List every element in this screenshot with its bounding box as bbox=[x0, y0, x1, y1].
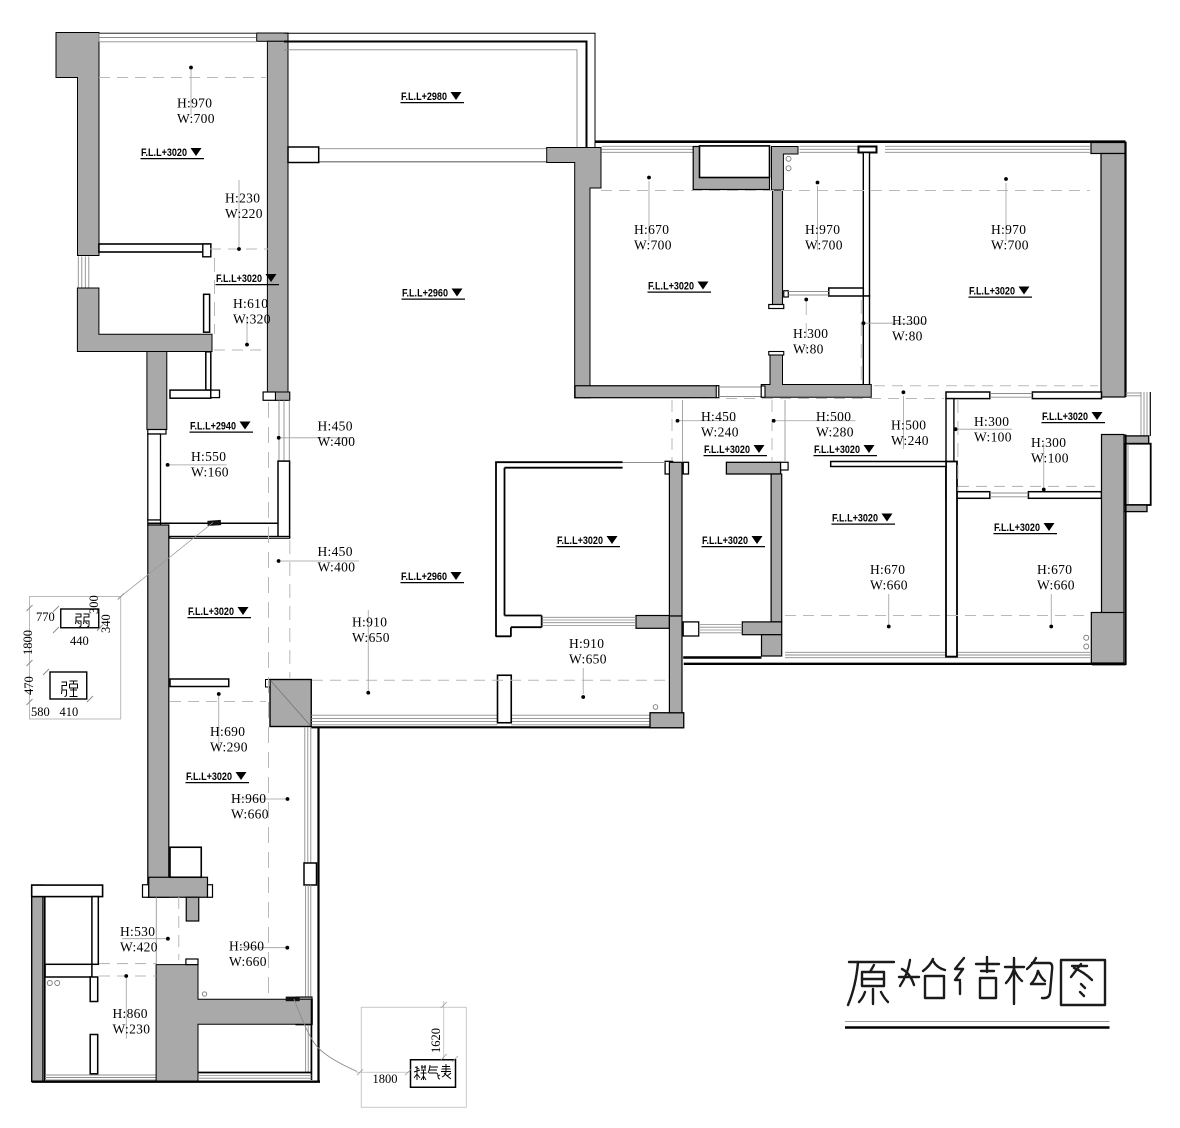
svg-text:W:280: W:280 bbox=[816, 425, 854, 440]
svg-text:W:400: W:400 bbox=[318, 560, 356, 575]
svg-text:F.L.L+3020: F.L.L+3020 bbox=[141, 147, 187, 159]
svg-text:W:660: W:660 bbox=[870, 578, 908, 593]
svg-text:H:670: H:670 bbox=[870, 562, 905, 577]
svg-text:W:320: W:320 bbox=[233, 312, 271, 327]
svg-text:H:960: H:960 bbox=[231, 791, 266, 806]
svg-text:F.L.L+3020: F.L.L+3020 bbox=[188, 606, 234, 618]
svg-text:H:860: H:860 bbox=[113, 1006, 148, 1021]
svg-text:F.L.L+3020: F.L.L+3020 bbox=[1042, 411, 1088, 423]
svg-text:W:80: W:80 bbox=[892, 329, 923, 344]
svg-text:F.L.L+3020: F.L.L+3020 bbox=[186, 771, 232, 783]
svg-text:H:610: H:610 bbox=[233, 296, 268, 311]
svg-text:F.L.L+3020: F.L.L+3020 bbox=[969, 286, 1015, 298]
svg-text:H:300: H:300 bbox=[1031, 435, 1066, 450]
svg-text:H:500: H:500 bbox=[816, 409, 851, 424]
svg-text:H:550: H:550 bbox=[191, 449, 226, 464]
svg-text:1620: 1620 bbox=[429, 1028, 443, 1053]
svg-text:H:450: H:450 bbox=[318, 419, 353, 434]
svg-text:W:80: W:80 bbox=[793, 342, 824, 357]
svg-text:H:970: H:970 bbox=[805, 222, 840, 237]
svg-text:W:700: W:700 bbox=[634, 238, 672, 253]
svg-text:340: 340 bbox=[99, 614, 113, 633]
svg-text:F.L.L+3020: F.L.L+3020 bbox=[216, 273, 262, 285]
svg-text:1800: 1800 bbox=[373, 1072, 398, 1086]
svg-text:W:240: W:240 bbox=[701, 425, 739, 440]
svg-text:W:100: W:100 bbox=[1031, 451, 1069, 466]
svg-text:F.L.L+2980: F.L.L+2980 bbox=[401, 91, 447, 103]
svg-text:H:960: H:960 bbox=[229, 939, 264, 954]
svg-text:H:970: H:970 bbox=[991, 222, 1026, 237]
svg-text:W:660: W:660 bbox=[229, 954, 267, 969]
svg-text:W:230: W:230 bbox=[113, 1022, 151, 1037]
svg-text:440: 440 bbox=[70, 634, 89, 648]
svg-text:W:700: W:700 bbox=[177, 111, 215, 126]
svg-text:F.L.L+3020: F.L.L+3020 bbox=[648, 281, 694, 293]
svg-text:W:700: W:700 bbox=[805, 238, 843, 253]
svg-text:F.L.L+3020: F.L.L+3020 bbox=[557, 535, 603, 547]
svg-text:H:910: H:910 bbox=[569, 636, 604, 651]
svg-text:H:300: H:300 bbox=[892, 313, 927, 328]
svg-text:300: 300 bbox=[87, 595, 101, 614]
svg-text:H:670: H:670 bbox=[634, 222, 669, 237]
svg-text:H:500: H:500 bbox=[891, 418, 926, 433]
svg-text:F.L.L+3020: F.L.L+3020 bbox=[814, 444, 860, 456]
svg-text:W:290: W:290 bbox=[210, 740, 248, 755]
svg-text:W:650: W:650 bbox=[352, 630, 390, 645]
svg-text:410: 410 bbox=[60, 705, 79, 719]
svg-text:H:910: H:910 bbox=[352, 615, 387, 630]
svg-text:F.L.L+3020: F.L.L+3020 bbox=[994, 522, 1040, 534]
svg-text:470: 470 bbox=[22, 676, 36, 695]
svg-text:F.L.L+3020: F.L.L+3020 bbox=[702, 535, 748, 547]
svg-text:H:450: H:450 bbox=[701, 409, 736, 424]
svg-text:H:530: H:530 bbox=[120, 924, 155, 939]
svg-text:H:690: H:690 bbox=[210, 724, 245, 739]
svg-text:F.L.L+3020: F.L.L+3020 bbox=[832, 513, 878, 525]
svg-text:F.L.L+3020: F.L.L+3020 bbox=[704, 444, 750, 456]
svg-text:H:970: H:970 bbox=[177, 96, 212, 111]
svg-text:1800: 1800 bbox=[21, 630, 35, 655]
svg-text:F.L.L+2960: F.L.L+2960 bbox=[402, 288, 448, 300]
svg-text:F.L.L+2940: F.L.L+2940 bbox=[190, 421, 236, 433]
svg-text:W:220: W:220 bbox=[225, 206, 263, 221]
svg-text:W:400: W:400 bbox=[318, 434, 356, 449]
svg-text:W:240: W:240 bbox=[891, 433, 929, 448]
svg-text:F.L.L+2960: F.L.L+2960 bbox=[401, 571, 447, 583]
svg-text:H:300: H:300 bbox=[793, 326, 828, 341]
svg-text:H:450: H:450 bbox=[318, 544, 353, 559]
svg-text:770: 770 bbox=[36, 610, 55, 624]
svg-text:W:660: W:660 bbox=[1037, 578, 1075, 593]
svg-text:W:100: W:100 bbox=[974, 430, 1012, 445]
svg-text:H:300: H:300 bbox=[974, 414, 1009, 429]
svg-text:W:650: W:650 bbox=[569, 652, 607, 667]
svg-text:580: 580 bbox=[31, 705, 50, 719]
svg-text:H:670: H:670 bbox=[1037, 562, 1072, 577]
svg-text:W:700: W:700 bbox=[991, 238, 1029, 253]
svg-text:H:230: H:230 bbox=[225, 191, 260, 206]
svg-text:W:160: W:160 bbox=[191, 465, 229, 480]
svg-text:W:420: W:420 bbox=[120, 940, 158, 955]
svg-text:W:660: W:660 bbox=[231, 807, 269, 822]
